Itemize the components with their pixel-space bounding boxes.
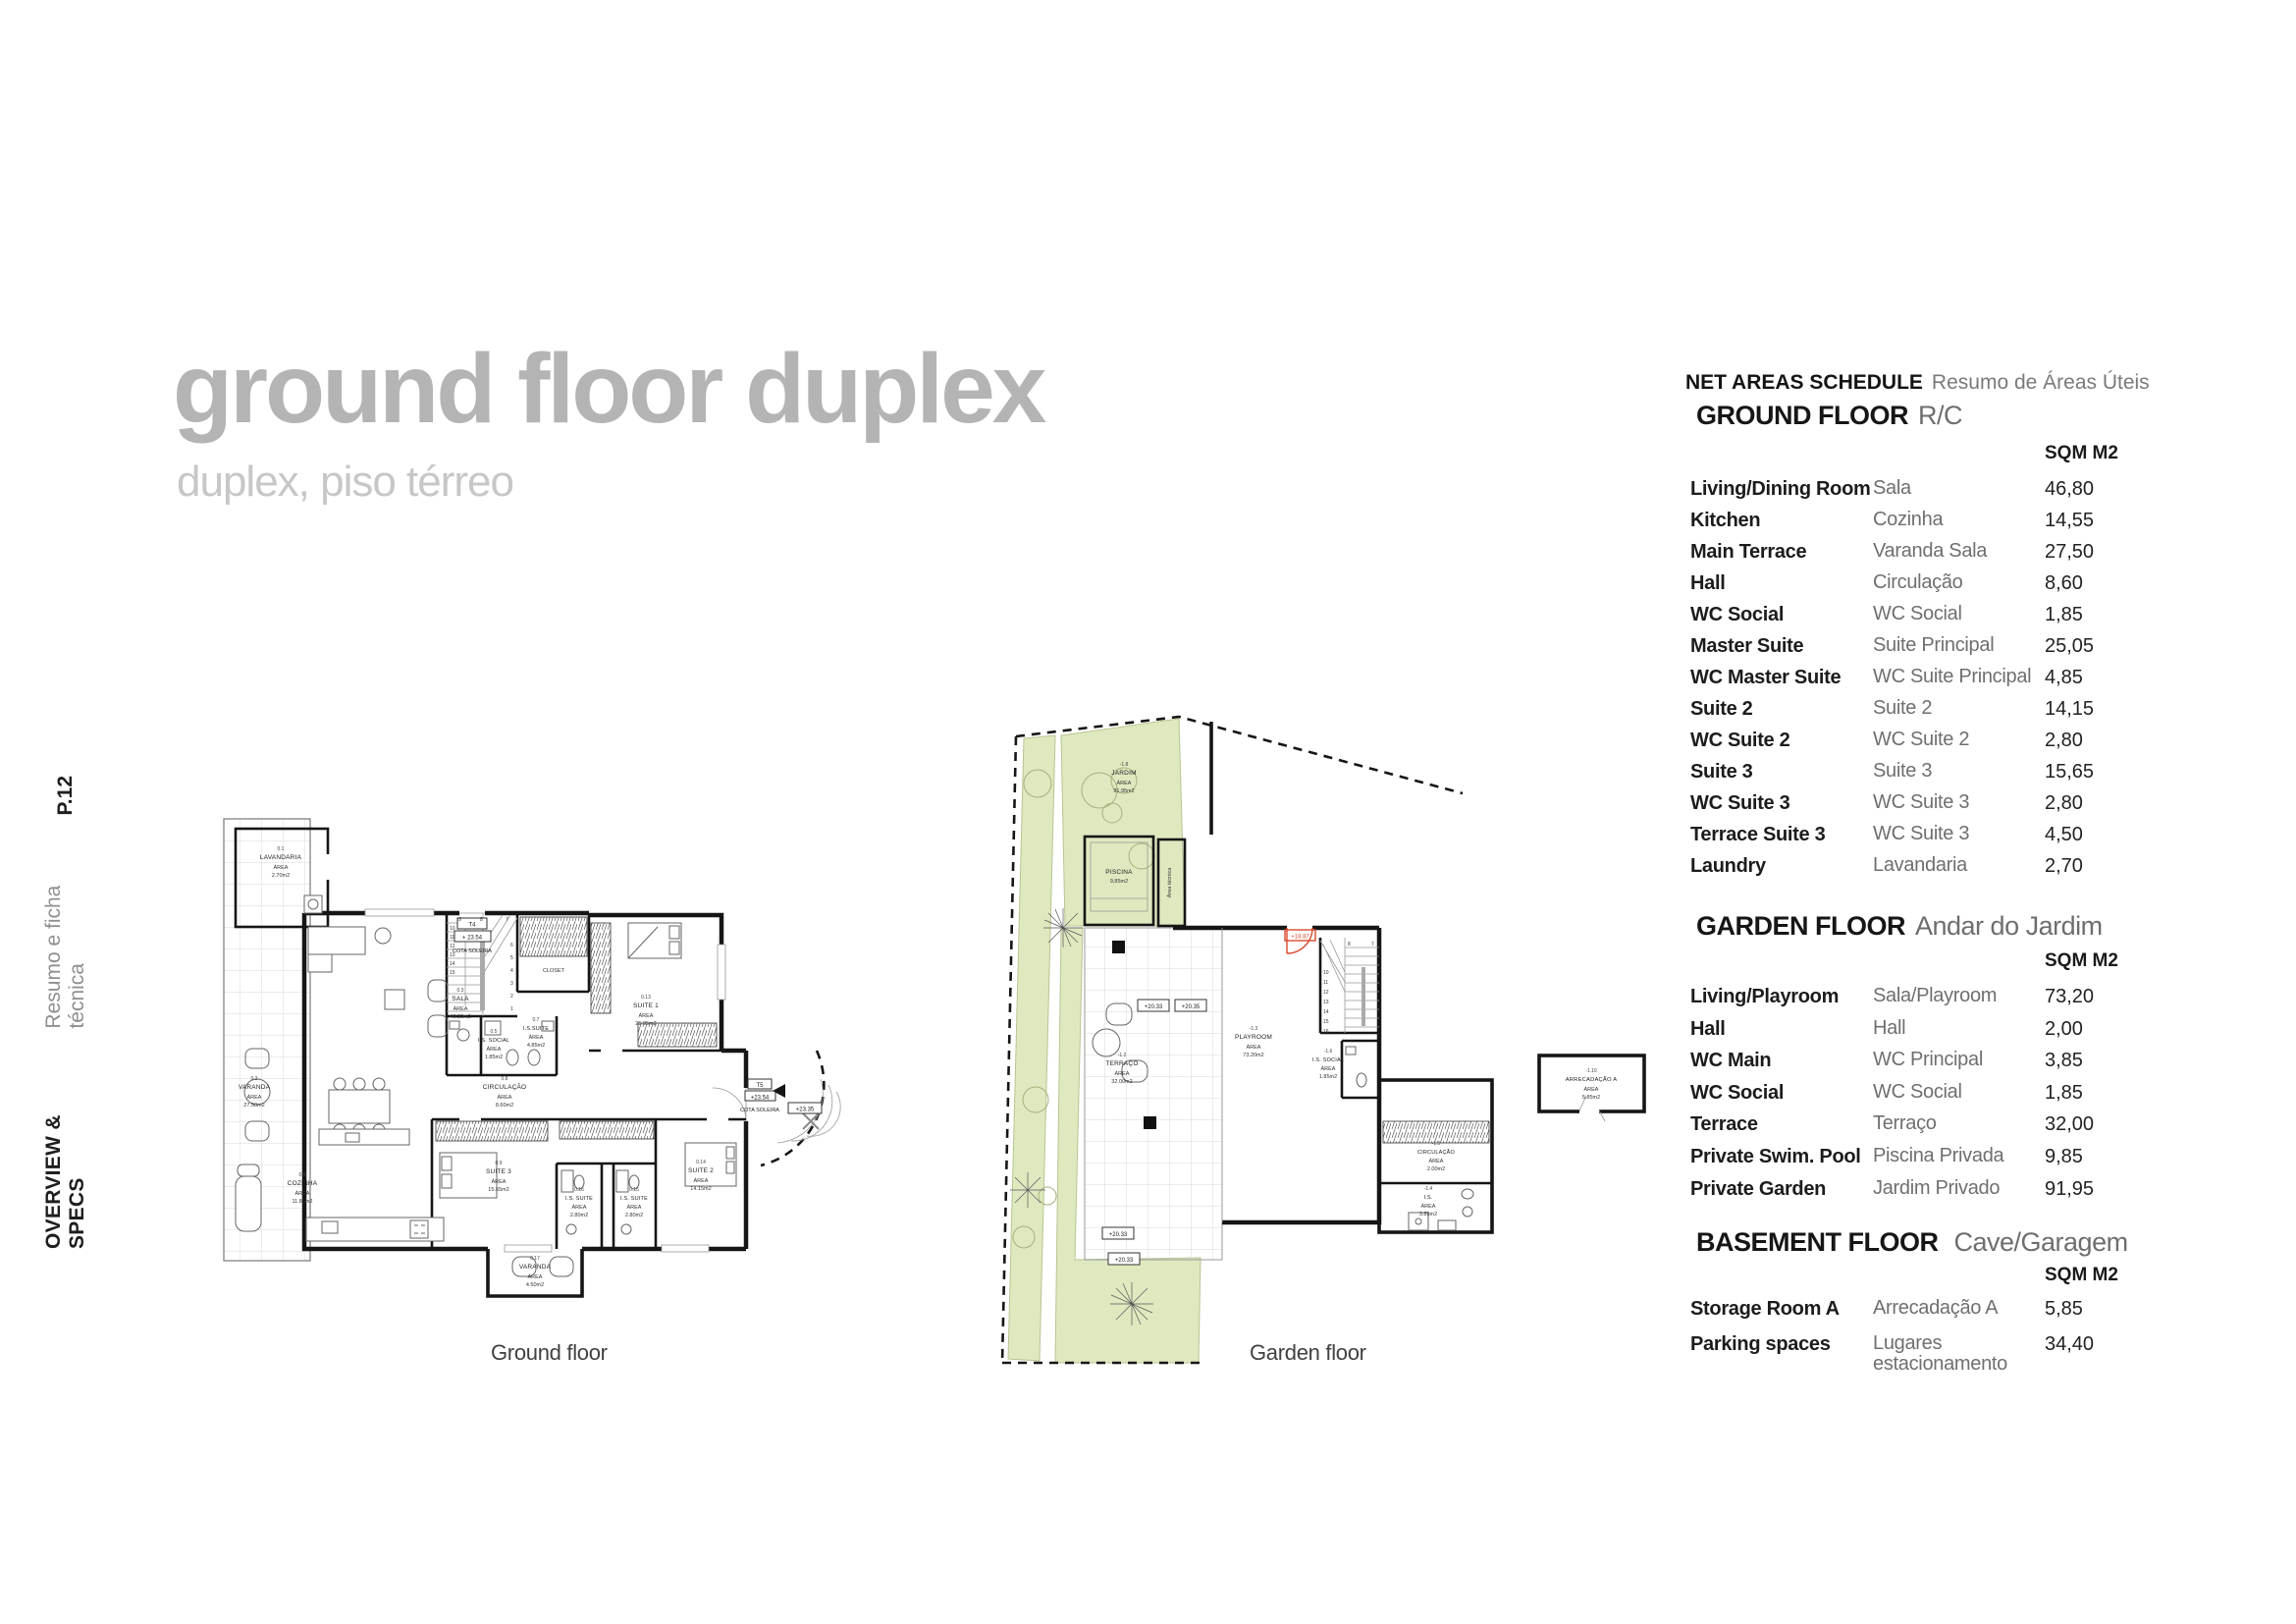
svg-text:-1.8: -1.8 xyxy=(1120,762,1129,768)
area-row-sqm: 25,05 xyxy=(2045,635,2094,658)
area-row-sqm: 14,15 xyxy=(2045,698,2094,721)
area-row-pt: Sala xyxy=(1873,478,2045,499)
svg-text:25.05m2: 25.05m2 xyxy=(635,1021,656,1027)
sidebar-vertical-label: OVERVIEW & SPECS Resumo e ficha técnica … xyxy=(49,776,82,1249)
svg-text:VARANDA: VARANDA xyxy=(519,1264,552,1271)
svg-text:+18.87: +18.87 xyxy=(1291,935,1309,941)
area-row-sqm: 2,80 xyxy=(2045,730,2083,752)
svg-text:I.S. SUITE: I.S. SUITE xyxy=(565,1196,593,1202)
svg-text:11.85m2: 11.85m2 xyxy=(293,1199,313,1205)
svg-text:9: 9 xyxy=(458,917,461,923)
svg-text:TERRAÇO: TERRAÇO xyxy=(1105,1060,1138,1067)
svg-text:1.85m2: 1.85m2 xyxy=(1319,1074,1337,1080)
svg-text:32.00m2: 32.00m2 xyxy=(1111,1079,1132,1085)
svg-text:14: 14 xyxy=(1323,1009,1329,1015)
svg-text:2.80m2: 2.80m2 xyxy=(625,1213,643,1218)
area-row-pt: WC Suite 2 xyxy=(1873,730,2045,750)
svg-text:SALA: SALA xyxy=(452,996,469,1002)
area-row-en: WC Suite 3 xyxy=(1690,792,1873,815)
svg-text:ÁREA: ÁREA xyxy=(529,1034,544,1041)
svg-text:11: 11 xyxy=(450,935,454,941)
svg-text:0.4: 0.4 xyxy=(299,1172,306,1178)
room-label-circulacao: 0.8CIRCULAÇÃOÁREA8.60m2 xyxy=(483,1076,527,1109)
page-title: ground floor duplex xyxy=(173,340,1043,438)
svg-text:15: 15 xyxy=(1323,1019,1329,1025)
area-row-pt: WC Social xyxy=(1873,1082,2045,1103)
area-row: Living/Dining Room Sala 46,80 xyxy=(1690,478,2279,510)
area-row-pt: Suite 2 xyxy=(1873,698,2045,719)
svg-text:I.S. SOCIAL: I.S. SOCIAL xyxy=(478,1038,509,1044)
area-row: Private Swim. Pool Piscina Privada 9,85 xyxy=(1690,1146,2279,1178)
page-number: P.12 xyxy=(54,776,78,816)
area-row-pt: Circulação xyxy=(1873,572,2045,593)
svg-text:0.7: 0.7 xyxy=(533,1017,540,1023)
svg-text:ÁREA: ÁREA xyxy=(487,1046,502,1053)
svg-text:T4: T4 xyxy=(468,923,476,929)
svg-text:15: 15 xyxy=(450,970,455,976)
svg-text:ÁREA: ÁREA xyxy=(1321,1065,1336,1072)
svg-text:+23.54: +23.54 xyxy=(751,1096,770,1102)
area-row-sqm: 5,85 xyxy=(2045,1298,2083,1321)
svg-text:ÁREA: ÁREA xyxy=(492,1178,507,1185)
svg-text:16: 16 xyxy=(1323,1029,1329,1035)
svg-text:1: 1 xyxy=(510,1006,513,1012)
svg-text:JARDIM: JARDIM xyxy=(1111,770,1136,777)
area-row-sqm: 32,00 xyxy=(2045,1113,2094,1136)
area-row-en: Hall xyxy=(1690,572,1873,595)
svg-text:I.S. SUITE: I.S. SUITE xyxy=(620,1196,648,1202)
svg-text:ÁREA: ÁREA xyxy=(528,1273,543,1280)
svg-text:4: 4 xyxy=(510,968,513,974)
unit-label-basement: SQM M2 xyxy=(2045,1265,2118,1286)
svg-text:11: 11 xyxy=(1323,980,1328,986)
svg-text:+20.33: +20.33 xyxy=(1115,1258,1134,1264)
area-row-en: Laundry xyxy=(1690,855,1873,878)
svg-text:I.S.SUITE: I.S.SUITE xyxy=(523,1026,549,1032)
area-row-en: Hall xyxy=(1690,1018,1873,1041)
svg-text:13: 13 xyxy=(450,952,455,958)
svg-text:SUITE 2: SUITE 2 xyxy=(688,1167,714,1174)
svg-text:PISCINA: PISCINA xyxy=(1105,869,1133,876)
sidebar-section-pt: Resumo e ficha técnica xyxy=(42,816,89,1029)
svg-text:3: 3 xyxy=(510,981,513,987)
area-row: Laundry Lavandaria 2,70 xyxy=(1690,855,2279,887)
area-row: Living/Playroom Sala/Playroom 73,20 xyxy=(1690,986,2279,1018)
area-row-pt: Lavandaria xyxy=(1873,855,2045,876)
svg-text:I.S. SOCIAL: I.S. SOCIAL xyxy=(1312,1057,1344,1063)
svg-text:12: 12 xyxy=(1323,990,1329,996)
svg-text:2.70m2: 2.70m2 xyxy=(272,873,290,879)
svg-text:ÁREA: ÁREA xyxy=(498,1094,512,1101)
svg-text:CIRCULAÇÃO: CIRCULAÇÃO xyxy=(483,1082,527,1091)
area-table-garden: Living/Playroom Sala/Playroom 73,20 Hall… xyxy=(1690,986,2279,1210)
area-row-sqm: 1,85 xyxy=(2045,1082,2083,1105)
svg-text:46.80m2: 46.80m2 xyxy=(450,1014,470,1020)
room-label-playroom: -1.3PLAYROOMÁREA73.20m2 xyxy=(1235,1026,1272,1058)
svg-text:-1.4: -1.4 xyxy=(1424,1186,1433,1192)
garden-floor-plan: +18.87 +20.33 +20.35 +20.33 +20.33 -1.8J… xyxy=(996,687,1674,1375)
area-row-pt: WC Suite Principal xyxy=(1873,667,2045,687)
svg-text:91.95m2: 91.95m2 xyxy=(1113,788,1134,794)
svg-text:COTA SOLEIRA: COTA SOLEIRA xyxy=(740,1108,779,1113)
area-row-pt: Piscina Privada xyxy=(1873,1146,2045,1166)
svg-text:ÁREA: ÁREA xyxy=(694,1177,709,1184)
svg-text:I.S.: I.S. xyxy=(1423,1195,1432,1201)
svg-text:+20.33: +20.33 xyxy=(1109,1232,1128,1238)
page-subtitle: duplex, piso térreo xyxy=(177,458,513,507)
area-row-pt: Varanda Sala xyxy=(1873,541,2045,562)
svg-text:+ 23.54: + 23.54 xyxy=(462,936,483,942)
area-row-sqm: 3,85 xyxy=(2045,1050,2083,1072)
area-row-pt: Sala/Playroom xyxy=(1873,986,2045,1006)
svg-text:SUITE 3: SUITE 3 xyxy=(486,1168,511,1175)
svg-text:ÁREA: ÁREA xyxy=(1115,1070,1130,1077)
unit-label-garden: SQM M2 xyxy=(2045,950,2118,972)
svg-text:14.15m2: 14.15m2 xyxy=(690,1186,711,1192)
unit-label-ground: SQM M2 xyxy=(2045,443,2118,464)
area-row-pt: Cozinha xyxy=(1873,510,2045,530)
area-row: Storage Room A Arrecadação A 5,85 xyxy=(1690,1298,2279,1333)
svg-text:4.50m2: 4.50m2 xyxy=(526,1282,544,1288)
svg-text:ÁREA: ÁREA xyxy=(454,1005,468,1012)
area-row-sqm: 73,20 xyxy=(2045,986,2094,1008)
svg-text:14: 14 xyxy=(450,961,455,967)
svg-text:0.14: 0.14 xyxy=(696,1160,706,1165)
area-row-en: WC Main xyxy=(1690,1050,1873,1072)
area-row-sqm: 8,60 xyxy=(2045,572,2083,595)
svg-text:8.60m2: 8.60m2 xyxy=(496,1103,513,1109)
area-row-sqm: 9,85 xyxy=(2045,1146,2083,1168)
area-row-pt: WC Suite 3 xyxy=(1873,824,2045,844)
area-row-sqm: 27,50 xyxy=(2045,541,2094,564)
area-row: Main Terrace Varanda Sala 27,50 xyxy=(1690,541,2279,572)
section-heading-ground: GROUND FLOORR/C xyxy=(1696,401,1962,431)
svg-text:0.3: 0.3 xyxy=(457,988,464,994)
room-label-suite1: 0.13SUITE 1ÁREA25.05m2 xyxy=(633,995,659,1027)
svg-text:COTA SOLEIRA: COTA SOLEIRA xyxy=(453,948,492,954)
area-row: WC Social WC Social 1,85 xyxy=(1690,1082,2279,1114)
area-row: WC Master Suite WC Suite Principal 4,85 xyxy=(1690,667,2279,698)
area-row: Hall Hall 2,00 xyxy=(1690,1018,2279,1051)
area-row-en: Living/Playroom xyxy=(1690,986,1873,1008)
area-row-pt: Arrecadação A xyxy=(1873,1298,2045,1319)
svg-text:-1.5: -1.5 xyxy=(1432,1141,1441,1147)
area-row: Suite 2 Suite 2 14,15 xyxy=(1690,698,2279,730)
area-row-en: Private Swim. Pool xyxy=(1690,1146,1873,1168)
svg-text:ÁREA: ÁREA xyxy=(572,1204,587,1211)
area-row-sqm: 46,80 xyxy=(2045,478,2094,501)
area-row-pt: Hall xyxy=(1873,1018,2045,1039)
area-row-en: Kitchen xyxy=(1690,510,1873,532)
area-table-ground: Living/Dining Room Sala 46,80 Kitchen Co… xyxy=(1690,478,2279,887)
area-row-pt: Lugares estacionamento xyxy=(1873,1333,2045,1375)
area-row-sqm: 2,70 xyxy=(2045,855,2083,878)
svg-text:-1.10: -1.10 xyxy=(1585,1068,1597,1074)
area-row-en: Storage Room A xyxy=(1690,1298,1873,1321)
svg-text:13: 13 xyxy=(1323,1000,1329,1005)
area-row: Hall Circulação 8,60 xyxy=(1690,572,2279,604)
area-row: WC Suite 3 WC Suite 3 2,80 xyxy=(1690,792,2279,824)
svg-text:ÁREA: ÁREA xyxy=(274,864,289,871)
area-row: WC Social WC Social 1,85 xyxy=(1690,604,2279,635)
svg-text:9,85m2: 9,85m2 xyxy=(1110,879,1128,885)
area-row-en: WC Social xyxy=(1690,604,1873,626)
area-row: Kitchen Cozinha 14,55 xyxy=(1690,510,2279,541)
svg-text:ÁREA: ÁREA xyxy=(627,1204,642,1211)
room-label-sala: 0.3SALAÁREA46.80m2 xyxy=(450,988,470,1020)
area-row-en: WC Master Suite xyxy=(1690,667,1873,689)
area-row: WC Main WC Principal 3,85 xyxy=(1690,1050,2279,1082)
svg-text:-1.3: -1.3 xyxy=(1250,1026,1258,1032)
svg-text:73.20m2: 73.20m2 xyxy=(1243,1053,1263,1058)
garden-red-door: +18.87 xyxy=(1285,928,1315,953)
svg-text:12: 12 xyxy=(450,944,455,949)
area-row-sqm: 4,85 xyxy=(2045,667,2083,689)
svg-text:2: 2 xyxy=(510,994,513,1000)
schedule-header-en: NET AREAS SCHEDULE xyxy=(1685,371,1923,394)
svg-text:ÁREA: ÁREA xyxy=(1117,780,1132,786)
svg-text:0.13: 0.13 xyxy=(641,995,651,1001)
svg-text:-1.2: -1.2 xyxy=(1118,1053,1127,1058)
svg-text:T5: T5 xyxy=(756,1083,764,1089)
svg-text:8: 8 xyxy=(1348,942,1351,947)
svg-text:ÁREA: ÁREA xyxy=(1421,1203,1436,1210)
garden-terrace xyxy=(1085,928,1222,1260)
svg-text:7: 7 xyxy=(1371,942,1374,947)
svg-text:0.2: 0.2 xyxy=(251,1076,258,1082)
svg-text:ÁREA: ÁREA xyxy=(1584,1086,1599,1093)
svg-text:10: 10 xyxy=(450,926,455,932)
svg-text:0.5: 0.5 xyxy=(491,1029,498,1035)
room-label-arrecadacao: -1.10ARRECADAÇÃO AÁREA5.85m2 xyxy=(1566,1068,1618,1101)
area-row-en: Main Terrace xyxy=(1690,541,1873,564)
svg-text:ÁREA: ÁREA xyxy=(295,1190,310,1197)
area-row: Terrace Terraço 32,00 xyxy=(1690,1113,2279,1146)
room-label-garden-circulacao: -1.5CIRCULAÇÃOÁREA2.00m2 xyxy=(1417,1141,1456,1172)
area-row-sqm: 91,95 xyxy=(2045,1178,2094,1201)
area-row-en: Suite 3 xyxy=(1690,761,1873,784)
section-heading-garden: GARDEN FLOORAndar do Jardim xyxy=(1696,911,2103,942)
section-heading-basement: BASEMENT FLOORCave/Garagem xyxy=(1696,1227,2128,1258)
area-row-en: Suite 2 xyxy=(1690,698,1873,721)
area-row-pt: Jardim Privado xyxy=(1873,1178,2045,1199)
svg-text:COZINHA: COZINHA xyxy=(288,1180,318,1187)
area-row-pt: Terraço xyxy=(1873,1113,2045,1134)
area-row-sqm: 2,80 xyxy=(2045,792,2083,815)
area-row-sqm: 14,55 xyxy=(2045,510,2094,532)
garden-plan-caption: Garden floor xyxy=(1250,1340,1366,1366)
svg-text:0.9: 0.9 xyxy=(496,1161,503,1166)
room-label-garden-is-social: -1.6I.S. SOCIALÁREA1.85m2 xyxy=(1312,1049,1344,1080)
svg-text:ARRECADAÇÃO A: ARRECADAÇÃO A xyxy=(1566,1076,1618,1083)
area-row-sqm: 1,85 xyxy=(2045,604,2083,626)
svg-text:1.85m2: 1.85m2 xyxy=(485,1055,503,1060)
room-label-garden-is: -1.4I.S.ÁREA3.85m2 xyxy=(1419,1186,1437,1218)
ground-floor-plan: T4 + 23.54 COTA SOLEIRA T5 +23.54 COTA S… xyxy=(218,797,861,1303)
area-row-en: WC Suite 2 xyxy=(1690,730,1873,752)
svg-text:0.15: 0.15 xyxy=(629,1187,639,1193)
svg-text:ÁREA: ÁREA xyxy=(247,1094,262,1101)
area-row: Parking spaces Lugares estacionamento 34… xyxy=(1690,1333,2279,1369)
area-row-pt: WC Principal xyxy=(1873,1050,2045,1070)
page: OVERVIEW & SPECS Resumo e ficha técnica … xyxy=(0,0,2296,1624)
svg-text:SUITE 1: SUITE 1 xyxy=(633,1002,659,1009)
svg-text:ÁREA: ÁREA xyxy=(639,1012,654,1019)
svg-text:ÁREA: ÁREA xyxy=(1247,1044,1261,1051)
area-row: Suite 3 Suite 3 15,65 xyxy=(1690,761,2279,792)
ground-furniture xyxy=(306,923,736,1276)
area-row-en: Parking spaces xyxy=(1690,1333,1873,1356)
area-row-pt: WC Social xyxy=(1873,604,2045,624)
svg-text:+20.33: +20.33 xyxy=(1145,1004,1163,1010)
area-row-en: Master Suite xyxy=(1690,635,1873,658)
area-row-pt: Suite 3 xyxy=(1873,761,2045,782)
area-row-pt: WC Suite 3 xyxy=(1873,792,2045,813)
area-row-pt: Suite Principal xyxy=(1873,635,2045,656)
area-row-en: Living/Dining Room xyxy=(1690,478,1873,501)
svg-text:VARANDA: VARANDA xyxy=(239,1084,271,1091)
garden-stair-numbers: 1011121314151687 xyxy=(1323,942,1374,1035)
schedule-header-pt: Resumo de Áreas Úteis xyxy=(1932,371,2150,394)
svg-text:0.16: 0.16 xyxy=(574,1187,584,1193)
svg-text:4.85m2: 4.85m2 xyxy=(527,1043,545,1049)
area-row-sqm: 15,65 xyxy=(2045,761,2094,784)
area-row-sqm: 34,40 xyxy=(2045,1333,2094,1356)
svg-text:3.85m2: 3.85m2 xyxy=(1419,1212,1437,1218)
area-row: Master Suite Suite Principal 25,05 xyxy=(1690,635,2279,667)
area-table-basement: Storage Room A Arrecadação A 5,85 Parkin… xyxy=(1690,1298,2279,1369)
svg-text:PLAYROOM: PLAYROOM xyxy=(1235,1034,1272,1041)
svg-text:5.85m2: 5.85m2 xyxy=(1582,1095,1600,1101)
svg-text:0.1: 0.1 xyxy=(278,846,285,852)
svg-text:6: 6 xyxy=(510,943,513,948)
area-row-en: Terrace xyxy=(1690,1113,1873,1136)
sidebar-section-en: OVERVIEW & SPECS xyxy=(42,1039,89,1249)
area-row-en: Private Garden xyxy=(1690,1178,1873,1201)
svg-text:8: 8 xyxy=(480,917,483,923)
room-label-closet: CLOSET xyxy=(543,968,565,974)
garden-stairs xyxy=(1320,938,1379,1033)
svg-text:0.17: 0.17 xyxy=(530,1256,540,1262)
svg-text:ÁREA: ÁREA xyxy=(1429,1158,1444,1164)
room-label-is-social: 0.5I.S. SOCIALÁREA1.85m2 xyxy=(478,1029,509,1060)
area-row-en: Terrace Suite 3 xyxy=(1690,824,1873,846)
area-row-en: WC Social xyxy=(1690,1082,1873,1105)
svg-text:27.50m2: 27.50m2 xyxy=(243,1103,264,1109)
svg-text:7: 7 xyxy=(506,917,508,923)
svg-text:+23.35: +23.35 xyxy=(796,1108,815,1113)
area-row: WC Suite 2 WC Suite 2 2,80 xyxy=(1690,730,2279,761)
area-row-sqm: 4,50 xyxy=(2045,824,2083,846)
area-row-sqm: 2,00 xyxy=(2045,1018,2083,1041)
area-row: Private Garden Jardim Privado 91,95 xyxy=(1690,1178,2279,1211)
svg-text:CIRCULAÇÃO: CIRCULAÇÃO xyxy=(1417,1149,1456,1156)
svg-text:10: 10 xyxy=(1323,970,1329,976)
svg-text:5: 5 xyxy=(510,955,513,961)
svg-text:2.80m2: 2.80m2 xyxy=(570,1213,588,1218)
svg-text:+20.35: +20.35 xyxy=(1182,1004,1201,1010)
schedule-header: NET AREAS SCHEDULEResumo de Áreas Úteis xyxy=(1685,371,2150,395)
svg-text:-1.6: -1.6 xyxy=(1324,1049,1333,1055)
room-label-area-tecnica: Área técnica xyxy=(1166,867,1173,898)
ground-plan-caption: Ground floor xyxy=(491,1340,608,1366)
svg-text:0.8: 0.8 xyxy=(502,1076,508,1082)
svg-text:LAVANDARIA: LAVANDARIA xyxy=(260,854,302,861)
svg-text:15.65m2: 15.65m2 xyxy=(488,1187,508,1193)
svg-text:2.00m2: 2.00m2 xyxy=(1427,1166,1445,1172)
area-row: Terrace Suite 3 WC Suite 3 4,50 xyxy=(1690,824,2279,855)
